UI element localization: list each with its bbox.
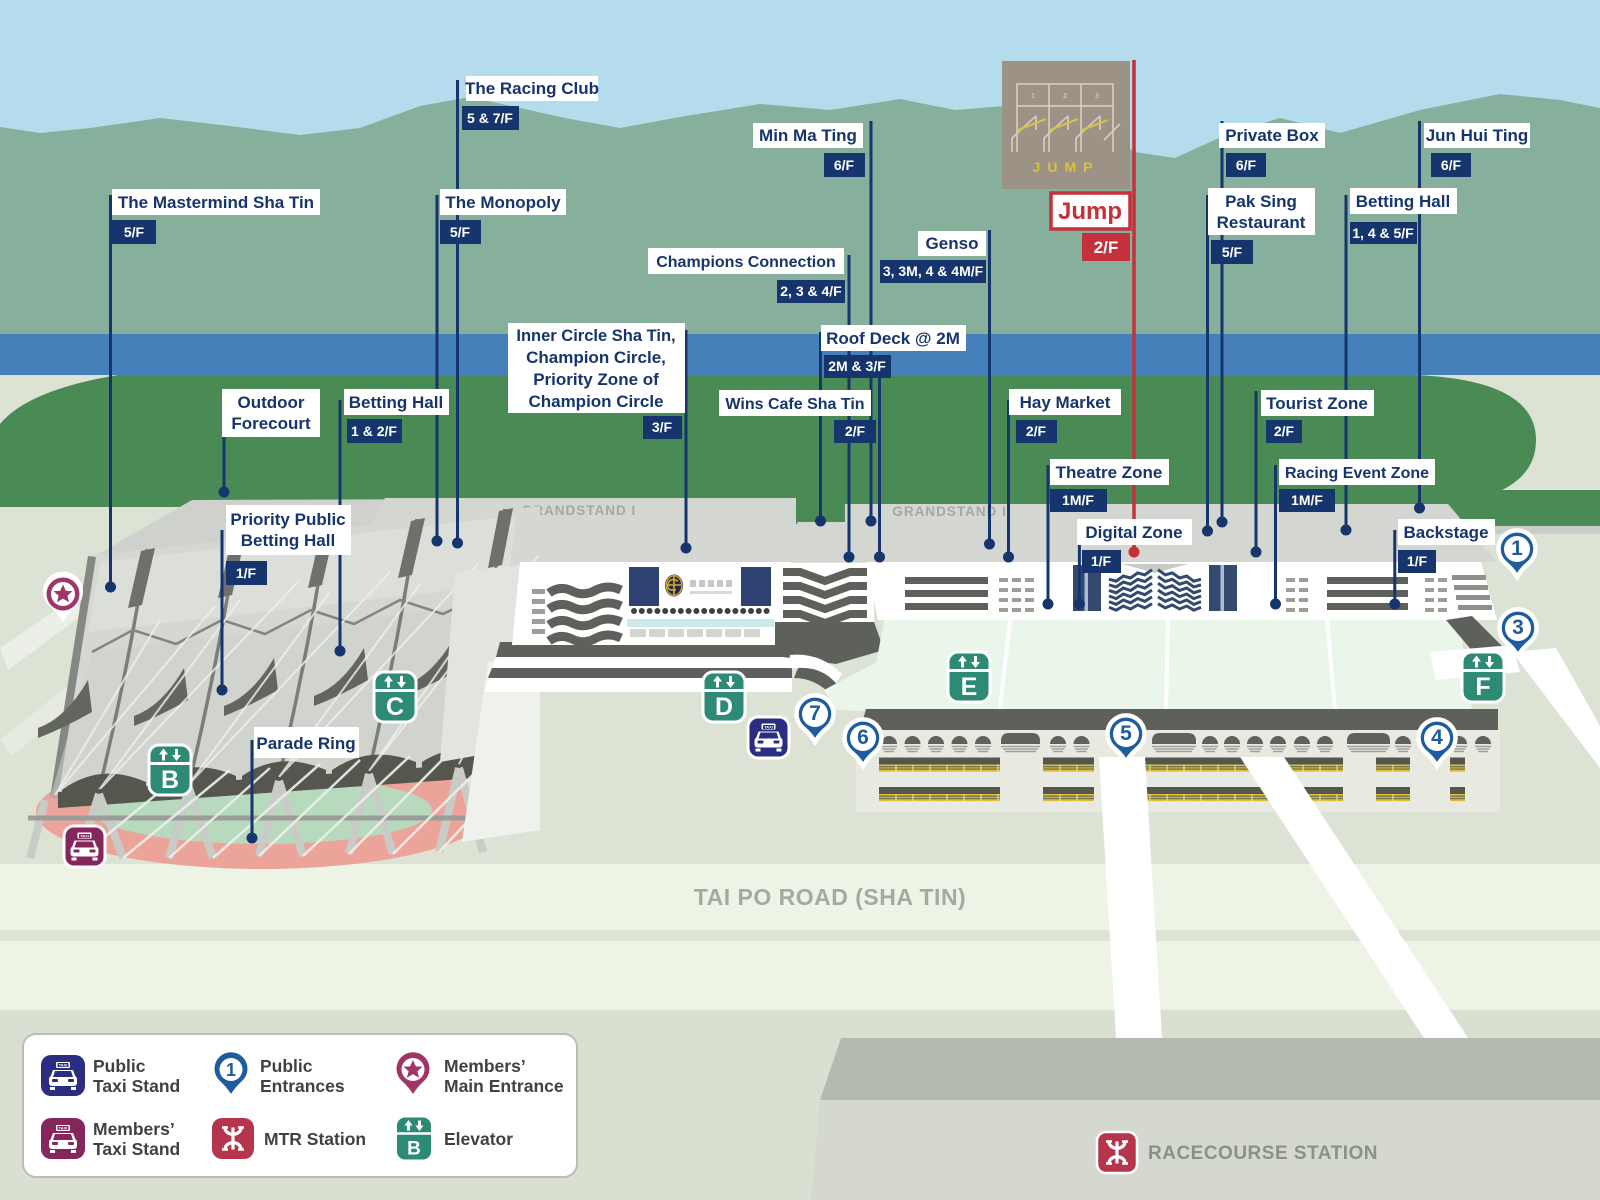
svg-text:Champions Connection: Champions Connection <box>656 254 836 271</box>
svg-text:Betting Hall: Betting Hall <box>349 393 443 412</box>
svg-text:1/F: 1/F <box>1091 553 1112 569</box>
svg-text:5/F: 5/F <box>124 224 145 240</box>
svg-text:4: 4 <box>1431 726 1443 749</box>
svg-text:3: 3 <box>1512 616 1524 639</box>
svg-text:E: E <box>961 673 978 701</box>
svg-text:Public: Public <box>260 1056 313 1076</box>
svg-text:TAXI: TAXI <box>80 834 89 839</box>
svg-text:The Monopoly: The Monopoly <box>445 193 561 212</box>
svg-text:The Mastermind Sha Tin: The Mastermind Sha Tin <box>118 193 314 212</box>
svg-text:1: 1 <box>1031 93 1035 100</box>
svg-text:The Racing Club: The Racing Club <box>465 79 599 98</box>
svg-text:Champion Circle: Champion Circle <box>528 392 663 411</box>
svg-text:1M/F: 1M/F <box>1062 492 1094 508</box>
svg-text:Pak Sing: Pak Sing <box>1225 192 1297 211</box>
svg-text:Betting Hall: Betting Hall <box>1356 192 1450 211</box>
svg-text:Elevator: Elevator <box>444 1129 513 1149</box>
svg-text:Outdoor: Outdoor <box>237 393 304 412</box>
svg-text:7: 7 <box>809 702 821 725</box>
svg-text:2/F: 2/F <box>1094 238 1119 257</box>
svg-text:Tourist Zone: Tourist Zone <box>1266 394 1368 413</box>
svg-text:6/F: 6/F <box>834 157 855 173</box>
svg-text:GRANDSTAND II: GRANDSTAND II <box>892 504 1011 519</box>
svg-text:TAXI: TAXI <box>764 725 773 730</box>
svg-text:Forecourt: Forecourt <box>231 414 311 433</box>
svg-text:Priority Public: Priority Public <box>230 510 345 529</box>
svg-text:Roof Deck @ 2M: Roof Deck @ 2M <box>826 329 960 348</box>
svg-text:Main Entrance: Main Entrance <box>444 1076 564 1096</box>
svg-text:Restaurant: Restaurant <box>1217 213 1306 232</box>
svg-text:1M/F: 1M/F <box>1291 492 1323 508</box>
svg-text:B: B <box>407 1139 421 1160</box>
svg-text:Members’: Members’ <box>444 1056 526 1076</box>
svg-text:6/F: 6/F <box>1441 157 1462 173</box>
svg-text:Priority Zone of: Priority Zone of <box>533 370 659 389</box>
svg-text:6/F: 6/F <box>1236 157 1257 173</box>
svg-text:Members’: Members’ <box>93 1119 175 1139</box>
svg-text:Hay Market: Hay Market <box>1020 393 1111 412</box>
svg-text:F: F <box>1475 673 1490 701</box>
svg-text:1: 1 <box>226 1060 236 1080</box>
svg-text:C: C <box>386 693 404 721</box>
svg-text:Private Box: Private Box <box>1225 126 1319 145</box>
svg-text:1/F: 1/F <box>236 565 257 581</box>
svg-text:RACECOURSE STATION: RACECOURSE STATION <box>1148 1143 1378 1164</box>
svg-text:1, 4 & 5/F: 1, 4 & 5/F <box>1352 225 1414 241</box>
svg-text:Taxi Stand: Taxi Stand <box>93 1139 180 1159</box>
svg-text:1/F: 1/F <box>1407 553 1428 569</box>
svg-text:JUMP: JUMP <box>1033 159 1100 175</box>
svg-text:3: 3 <box>1095 93 1099 100</box>
svg-text:3, 3M, 4 & 4M/F: 3, 3M, 4 & 4M/F <box>883 263 984 279</box>
svg-text:Taxi Stand: Taxi Stand <box>93 1076 180 1096</box>
svg-text:Inner Circle Sha Tin,: Inner Circle Sha Tin, <box>516 327 675 345</box>
svg-text:Backstage: Backstage <box>1403 523 1488 542</box>
svg-text:2, 3 & 4/F: 2, 3 & 4/F <box>780 283 842 299</box>
svg-text:Betting Hall: Betting Hall <box>241 531 335 550</box>
svg-text:6: 6 <box>857 726 869 749</box>
svg-text:2/F: 2/F <box>1274 423 1295 439</box>
svg-text:Racing Event Zone: Racing Event Zone <box>1285 465 1429 482</box>
svg-text:5/F: 5/F <box>1222 244 1243 260</box>
svg-text:MTR Station: MTR Station <box>264 1129 366 1149</box>
svg-text:Entrances: Entrances <box>260 1076 345 1096</box>
svg-text:1 & 2/F: 1 & 2/F <box>351 423 397 439</box>
svg-text:Digital Zone: Digital Zone <box>1085 523 1182 542</box>
svg-text:TAXI: TAXI <box>59 1126 68 1131</box>
svg-text:1: 1 <box>1511 537 1523 560</box>
svg-text:D: D <box>715 693 733 721</box>
svg-text:Theatre Zone: Theatre Zone <box>1056 463 1163 482</box>
svg-text:B: B <box>161 766 179 794</box>
svg-text:Genso: Genso <box>926 234 979 253</box>
svg-text:Champion Circle,: Champion Circle, <box>526 348 666 367</box>
svg-text:2/F: 2/F <box>845 423 866 439</box>
svg-text:5 & 7/F: 5 & 7/F <box>467 110 513 126</box>
svg-text:2M & 3/F: 2M & 3/F <box>828 358 886 374</box>
svg-text:Jump: Jump <box>1058 198 1122 225</box>
svg-text:Wins Cafe Sha Tin: Wins Cafe Sha Tin <box>725 396 864 413</box>
svg-text:5: 5 <box>1120 722 1132 745</box>
svg-text:5/F: 5/F <box>450 224 471 240</box>
svg-text:2: 2 <box>1063 93 1067 100</box>
svg-text:Min Ma Ting: Min Ma Ting <box>759 126 857 145</box>
svg-text:Parade Ring: Parade Ring <box>256 734 355 753</box>
svg-text:Public: Public <box>93 1056 146 1076</box>
svg-text:3/F: 3/F <box>652 419 673 435</box>
svg-text:2/F: 2/F <box>1026 423 1047 439</box>
svg-text:TAI PO ROAD (SHA TIN): TAI PO ROAD (SHA TIN) <box>694 884 966 910</box>
svg-text:TAXI: TAXI <box>59 1063 68 1068</box>
svg-text:Jun Hui Ting: Jun Hui Ting <box>1426 126 1529 145</box>
